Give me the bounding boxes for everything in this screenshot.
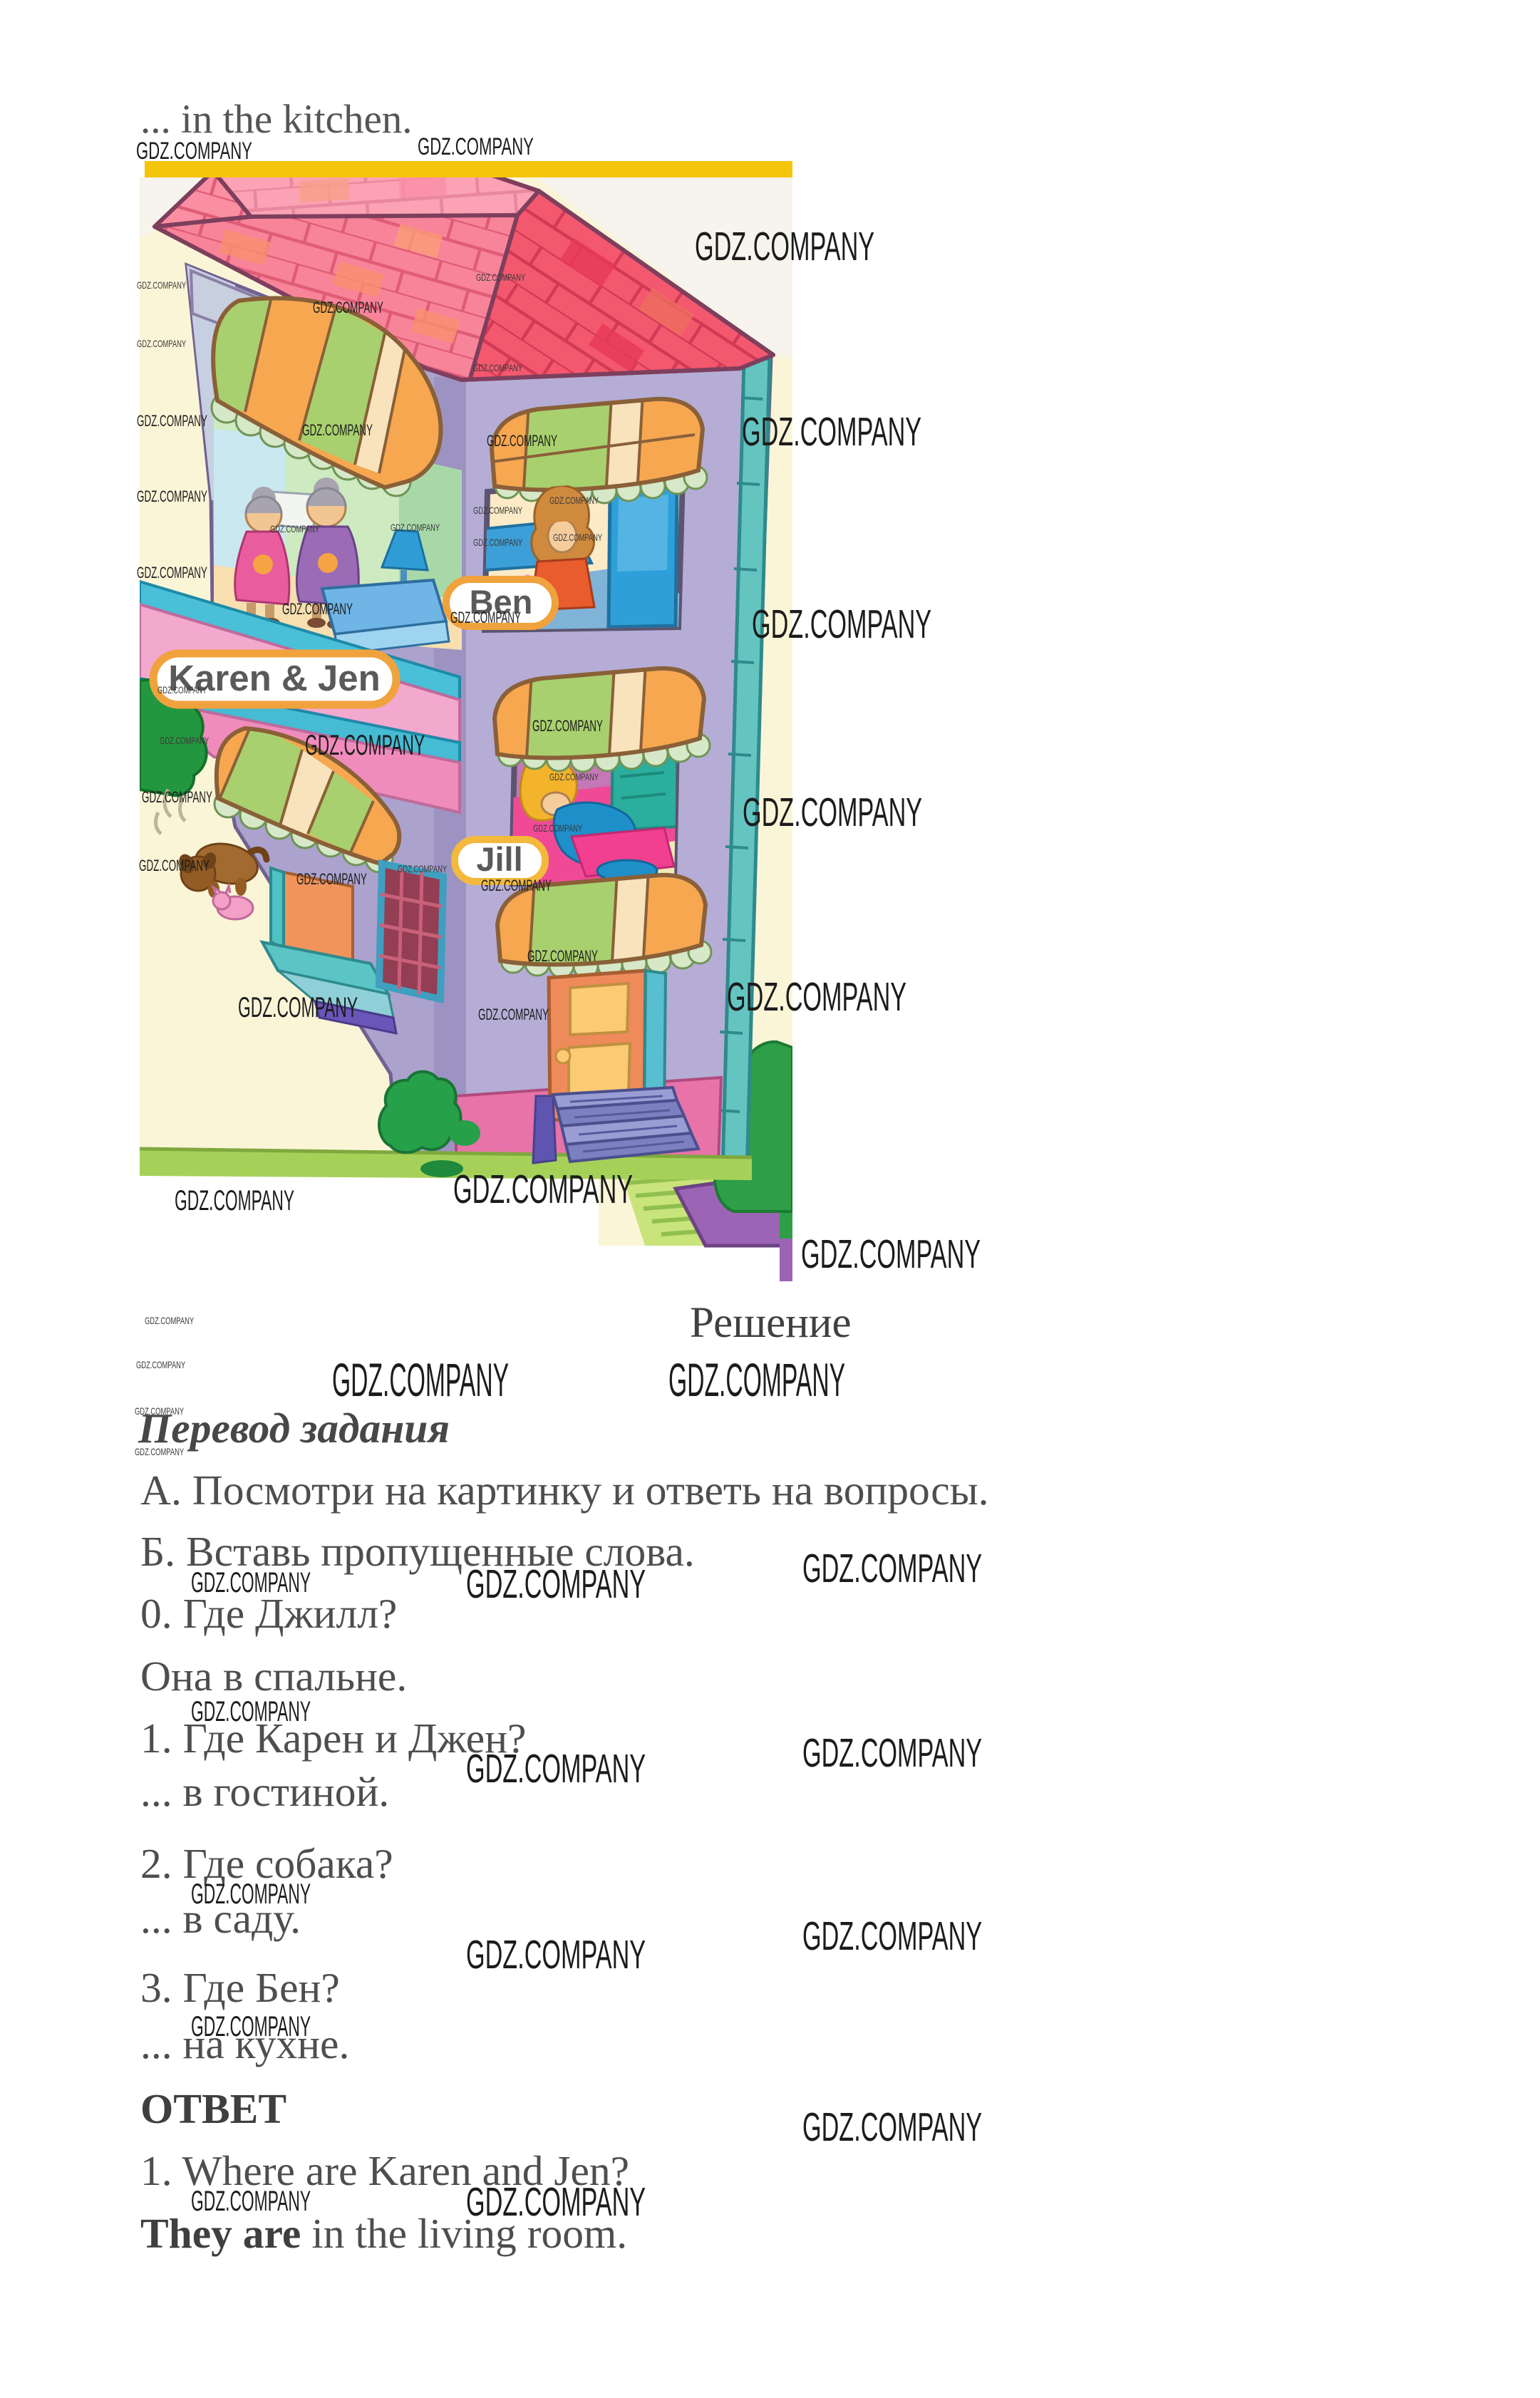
svg-text:Jill: Jill	[476, 840, 522, 878]
